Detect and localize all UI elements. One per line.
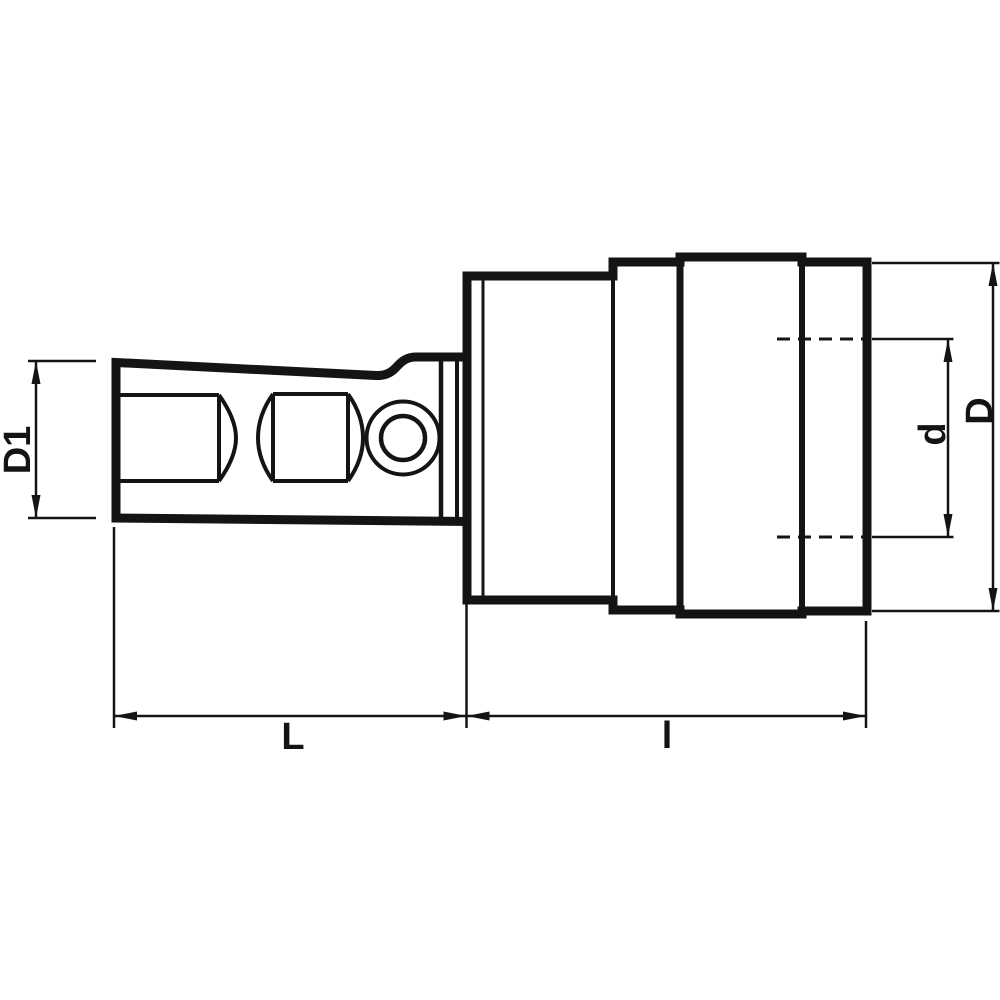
arrowhead [843, 712, 866, 721]
drive-socket-slot-2 [258, 394, 363, 481]
arrowhead [114, 712, 137, 721]
cross-hole-outer [367, 402, 440, 475]
arrowhead [467, 712, 490, 721]
technical-drawing: D1 L l D d [0, 0, 1000, 1000]
arrowhead [444, 712, 467, 721]
dimension-lengths [114, 527, 866, 728]
arrowhead [944, 339, 953, 362]
label-shank-length: L [281, 716, 304, 758]
drawing-canvas: D1 L l D d [0, 0, 1000, 1000]
arrowhead [944, 514, 953, 537]
drive-socket-slot-1 [120, 395, 236, 481]
label-shank-diameter: D1 [0, 426, 39, 475]
arrowhead [32, 495, 41, 518]
label-bore-diameter: d [912, 422, 954, 445]
label-body-diameter: D [959, 397, 1000, 424]
body-outline [467, 257, 867, 614]
label-body-length: l [662, 715, 673, 757]
arrowhead [32, 361, 41, 384]
arrowhead [989, 263, 998, 286]
cross-hole-inner [381, 416, 425, 460]
shank-outline [116, 357, 467, 522]
arrowhead [989, 588, 998, 611]
